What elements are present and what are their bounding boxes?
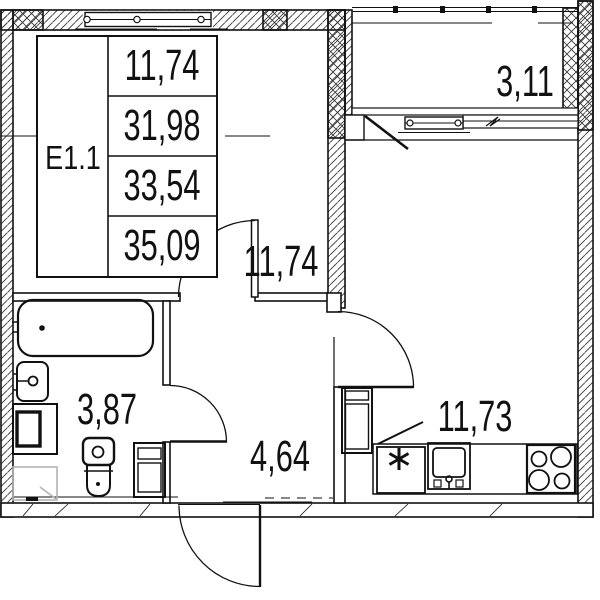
toilet-tank bbox=[83, 438, 114, 465]
toilet-drain bbox=[96, 482, 100, 486]
wall-top-block-a bbox=[13, 10, 43, 30]
bathroom-sink-trap bbox=[13, 374, 29, 390]
room-window-pivot bbox=[198, 16, 204, 22]
room-area-label: 11,74 bbox=[239, 240, 323, 284]
wall-room-south-right bbox=[255, 293, 328, 301]
bathroom-sink-faucet bbox=[29, 377, 38, 386]
fridge bbox=[342, 388, 372, 453]
table-value-3: 33,54 bbox=[120, 164, 204, 208]
wall-top-block-b bbox=[263, 10, 287, 30]
toilet-button bbox=[93, 447, 104, 458]
toilet-bowl bbox=[87, 465, 110, 496]
balcony-floor-edge bbox=[352, 108, 578, 115]
room-window-pivot bbox=[84, 16, 90, 22]
glazing-mullion bbox=[440, 6, 445, 13]
fridge-body bbox=[342, 388, 372, 453]
glazing-mullion bbox=[486, 6, 491, 13]
kitchen-sink bbox=[428, 443, 470, 489]
room-window-pivot bbox=[134, 16, 140, 22]
kitchen-area-label: 11,73 bbox=[433, 395, 517, 439]
stove-burner bbox=[555, 474, 570, 489]
table-value-1: 11,74 bbox=[120, 44, 204, 88]
balcony-glazing-lines bbox=[352, 8, 578, 12]
stove-burner bbox=[532, 452, 547, 467]
bathroom-area-label: 3,87 bbox=[65, 388, 149, 432]
kitchen-sink-tap bbox=[434, 480, 441, 487]
balcony-area-label: 3,11 bbox=[483, 60, 567, 104]
wall-bottom bbox=[1, 503, 593, 517]
washer-place bbox=[377, 447, 425, 493]
wall-bathroom-east-upper bbox=[163, 301, 170, 385]
wall-hall-kitchen bbox=[334, 387, 345, 503]
kitchen-sink-tap bbox=[456, 480, 463, 487]
balcony-window-pivot bbox=[455, 120, 461, 126]
cabinet-open-door bbox=[378, 422, 423, 444]
table-value-2: 31,98 bbox=[120, 104, 204, 148]
bathroom-door bbox=[170, 386, 227, 443]
fridge-top bbox=[346, 391, 369, 400]
bathtub bbox=[18, 300, 153, 356]
stove-burner bbox=[551, 447, 571, 467]
balcony-window bbox=[398, 117, 470, 133]
kitchen-door-swing bbox=[338, 312, 414, 388]
glazing-mullion bbox=[393, 6, 398, 13]
hallway-area-label: 4,64 bbox=[238, 435, 322, 479]
balcony-pier bbox=[345, 115, 364, 140]
bathroom-cabinet-door bbox=[138, 463, 161, 492]
bathroom-door-swing bbox=[170, 386, 227, 443]
floor-plan: Е1.1 11,74 31,98 33,54 35,09 11,74 3,11 … bbox=[0, 0, 600, 600]
glazing-mullion bbox=[532, 6, 537, 13]
wall-stub bbox=[327, 293, 341, 312]
kitchen-door bbox=[338, 312, 414, 388]
apartment-type-code: Е1.1 bbox=[24, 141, 122, 174]
shower-tray bbox=[13, 467, 57, 501]
stove bbox=[527, 445, 575, 493]
washing-machine-drum bbox=[17, 412, 40, 446]
room-window bbox=[75, 11, 228, 29]
washer-place-box bbox=[377, 447, 425, 493]
kitchen-sink-bowl bbox=[433, 448, 465, 477]
wall-middle-block bbox=[328, 10, 345, 138]
stove-burner bbox=[529, 470, 549, 490]
bathtub-drain bbox=[39, 325, 45, 331]
table-value-4: 35,09 bbox=[120, 224, 204, 268]
washer-asterisk bbox=[390, 448, 409, 470]
wall-right-block bbox=[578, 1, 593, 130]
balcony-window-pivot bbox=[407, 120, 413, 126]
toilet bbox=[83, 438, 114, 496]
bathroom-cabinet-drawer bbox=[138, 448, 161, 459]
fridge-inner bbox=[346, 404, 369, 449]
wall-left bbox=[1, 10, 13, 517]
wall-balcony-west bbox=[345, 10, 352, 115]
shower-tray-drain bbox=[26, 497, 38, 501]
balcony-glazing bbox=[352, 6, 578, 13]
bathroom-cabinet bbox=[134, 443, 165, 497]
